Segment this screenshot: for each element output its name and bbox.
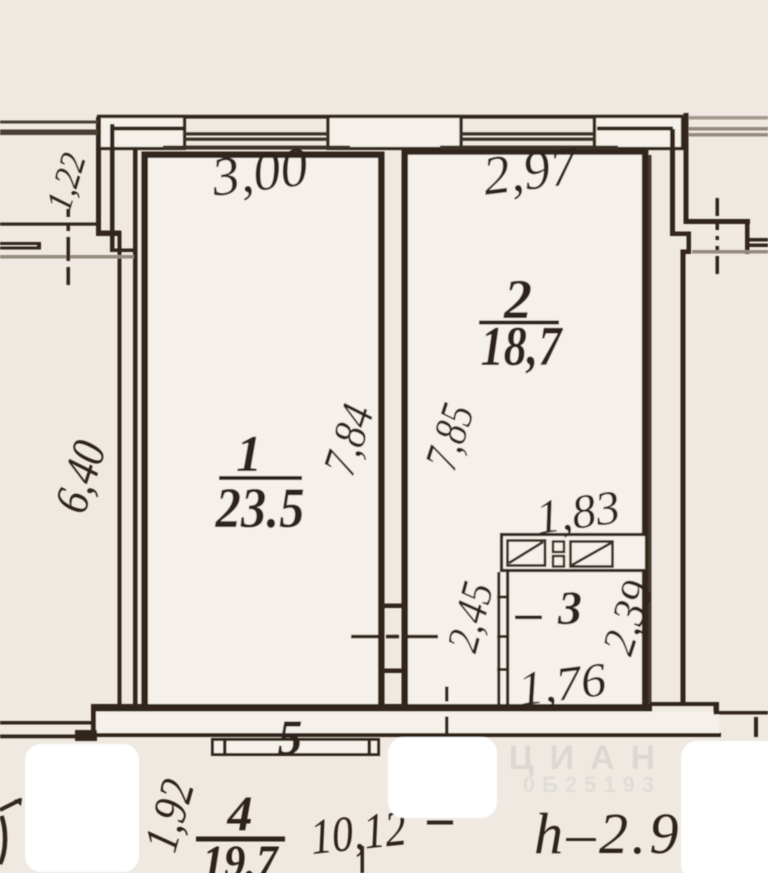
svg-text:h–2.9: h–2.9 bbox=[534, 801, 682, 866]
svg-text:4: 4 bbox=[227, 785, 253, 841]
svg-text:19.7: 19.7 bbox=[203, 836, 280, 873]
svg-text:1: 1 bbox=[236, 426, 262, 483]
svg-text:3: 3 bbox=[557, 582, 582, 635]
svg-text:18,7: 18,7 bbox=[481, 316, 564, 378]
svg-text:1,76: 1,76 bbox=[515, 653, 609, 716]
svg-text:23.5: 23.5 bbox=[215, 477, 305, 540]
svg-text:2,97: 2,97 bbox=[479, 134, 582, 206]
svg-text:3,00: 3,00 bbox=[207, 136, 311, 208]
svg-text:5: 5 bbox=[278, 709, 303, 765]
svg-text:0Б25193: 0Б25193 bbox=[523, 772, 661, 797]
